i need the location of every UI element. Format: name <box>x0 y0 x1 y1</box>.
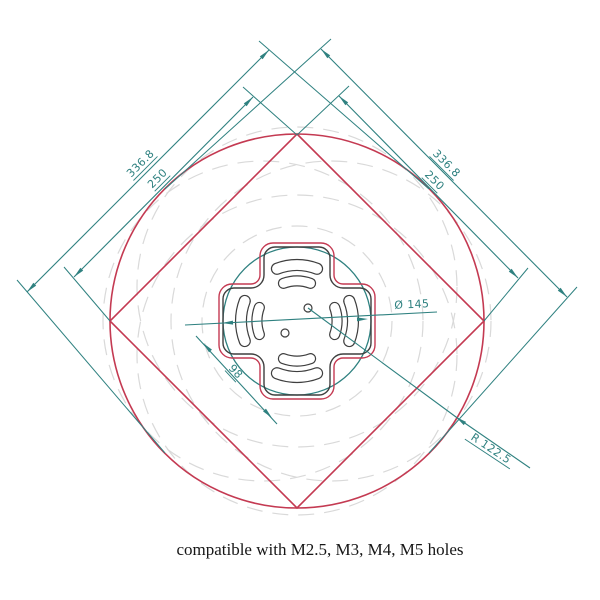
extension-line <box>297 86 349 135</box>
slot-left-outer <box>236 295 251 346</box>
arrow-icon <box>558 288 569 299</box>
extension-line <box>484 268 528 321</box>
slot-right-inner <box>330 302 342 339</box>
construction-circle <box>202 226 392 416</box>
pilot-hole <box>281 329 289 337</box>
slot-bottom-outer <box>271 368 322 383</box>
arrow-icon <box>357 317 368 321</box>
diameter-dimension: Ø 145 <box>394 297 430 312</box>
rotated-square <box>110 134 484 508</box>
extension-line <box>17 280 165 453</box>
dimension-line-250-left <box>74 97 253 277</box>
slot-bottom-inner <box>278 354 315 366</box>
extension-line <box>64 267 110 321</box>
arrow-icon <box>73 268 84 279</box>
outer-circle <box>110 134 484 508</box>
arrow-icon <box>338 95 349 106</box>
extension-line <box>259 41 429 189</box>
dimension-line-336-right <box>321 49 567 297</box>
drawing-canvas: 336.8 250 336.8 250 Ø 145 98 R 122.5 com… <box>0 0 600 600</box>
slot-top-outer <box>271 260 322 275</box>
diameter-label: Ø 145 <box>394 297 430 312</box>
extension-line <box>165 39 331 189</box>
arrow-icon <box>260 49 271 60</box>
extension-line <box>429 287 577 453</box>
width-label: 98 <box>226 362 246 382</box>
bolt-circle <box>223 247 371 395</box>
arrow-icon <box>244 96 255 107</box>
radius-label: R 122.5 <box>468 431 513 467</box>
dimension-line-336-left <box>27 50 269 292</box>
plate-outline-red <box>219 243 375 399</box>
width-dimension: 98 <box>225 361 246 382</box>
arrow-icon <box>26 283 37 294</box>
arrow-icon <box>320 48 331 59</box>
plate-outline <box>223 247 371 395</box>
radius-dimension: R 122.5 <box>465 428 517 469</box>
dimension-line-250-right <box>339 96 518 278</box>
arrow-icon <box>509 269 520 280</box>
cad-drawing: 336.8 250 336.8 250 Ø 145 98 R 122.5 com… <box>0 0 600 600</box>
slot-top-inner <box>278 276 315 288</box>
slot-right-outer <box>344 295 359 346</box>
caption: compatible with M2.5, M3, M4, M5 holes <box>176 540 463 559</box>
